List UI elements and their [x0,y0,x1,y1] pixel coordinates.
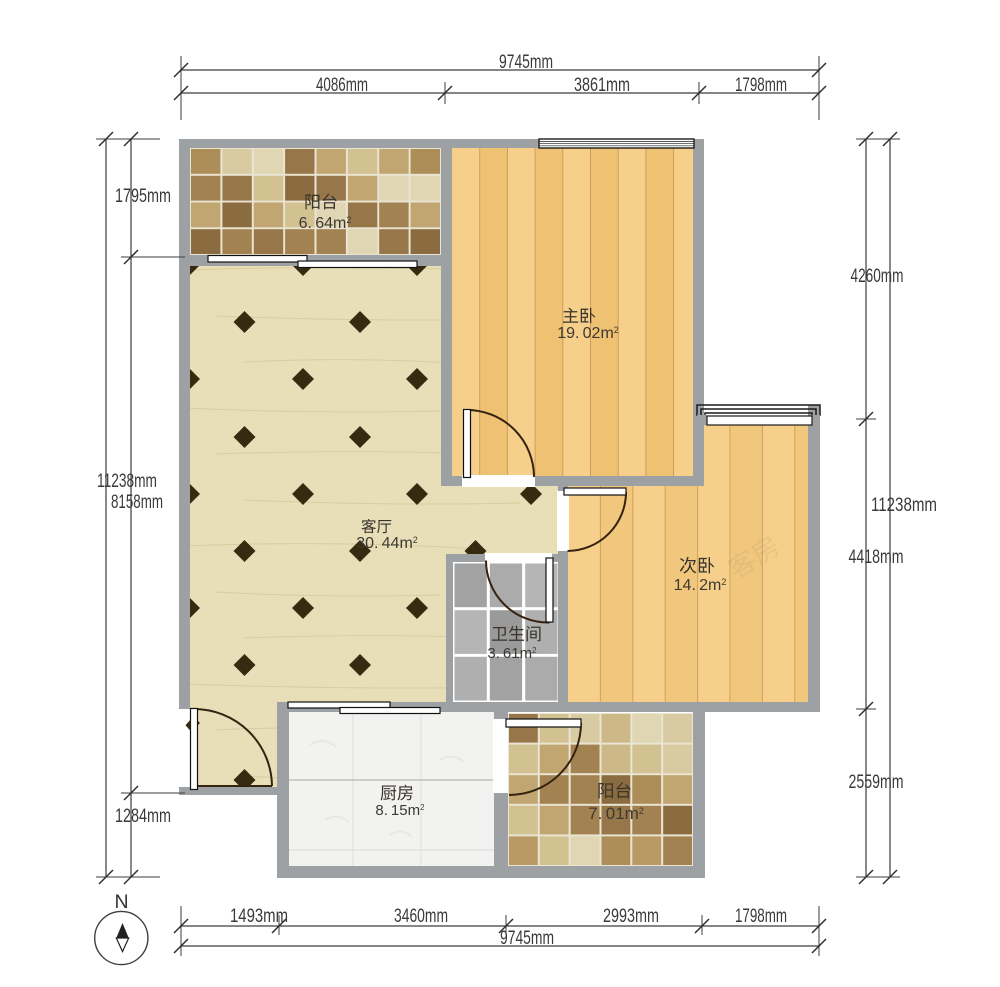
svg-text:7. 01m2: 7. 01m2 [588,804,644,823]
svg-text:6. 64m2: 6. 64m2 [299,215,352,232]
svg-text:3861mm: 3861mm [574,75,630,96]
svg-text:4086mm: 4086mm [316,75,368,96]
svg-text:2559mm: 2559mm [849,772,904,793]
svg-text:9745mm: 9745mm [500,928,554,949]
svg-text:11238mm: 11238mm [97,471,157,492]
svg-text:1798mm: 1798mm [735,906,787,927]
svg-text:3460mm: 3460mm [394,906,448,927]
svg-text:1284mm: 1284mm [115,806,171,827]
svg-text:3. 61m2: 3. 61m2 [487,645,537,662]
svg-text:1798mm: 1798mm [735,75,787,96]
svg-text:19. 02m2: 19. 02m2 [557,325,619,342]
svg-text:8. 15m2: 8. 15m2 [375,802,425,819]
svg-text:4260mm: 4260mm [851,266,904,287]
svg-text:11238mm: 11238mm [871,495,937,516]
svg-text:1795mm: 1795mm [115,186,171,207]
svg-text:1493mm: 1493mm [230,906,288,927]
svg-text:14. 2m2: 14. 2m2 [674,577,727,594]
svg-text:4418mm: 4418mm [849,547,904,568]
svg-text:8158mm: 8158mm [111,492,163,513]
svg-text:30. 44m2: 30. 44m2 [356,535,418,552]
svg-text:9745mm: 9745mm [499,52,553,73]
svg-text:2993mm: 2993mm [603,906,659,927]
svg-text:N: N [114,891,128,913]
